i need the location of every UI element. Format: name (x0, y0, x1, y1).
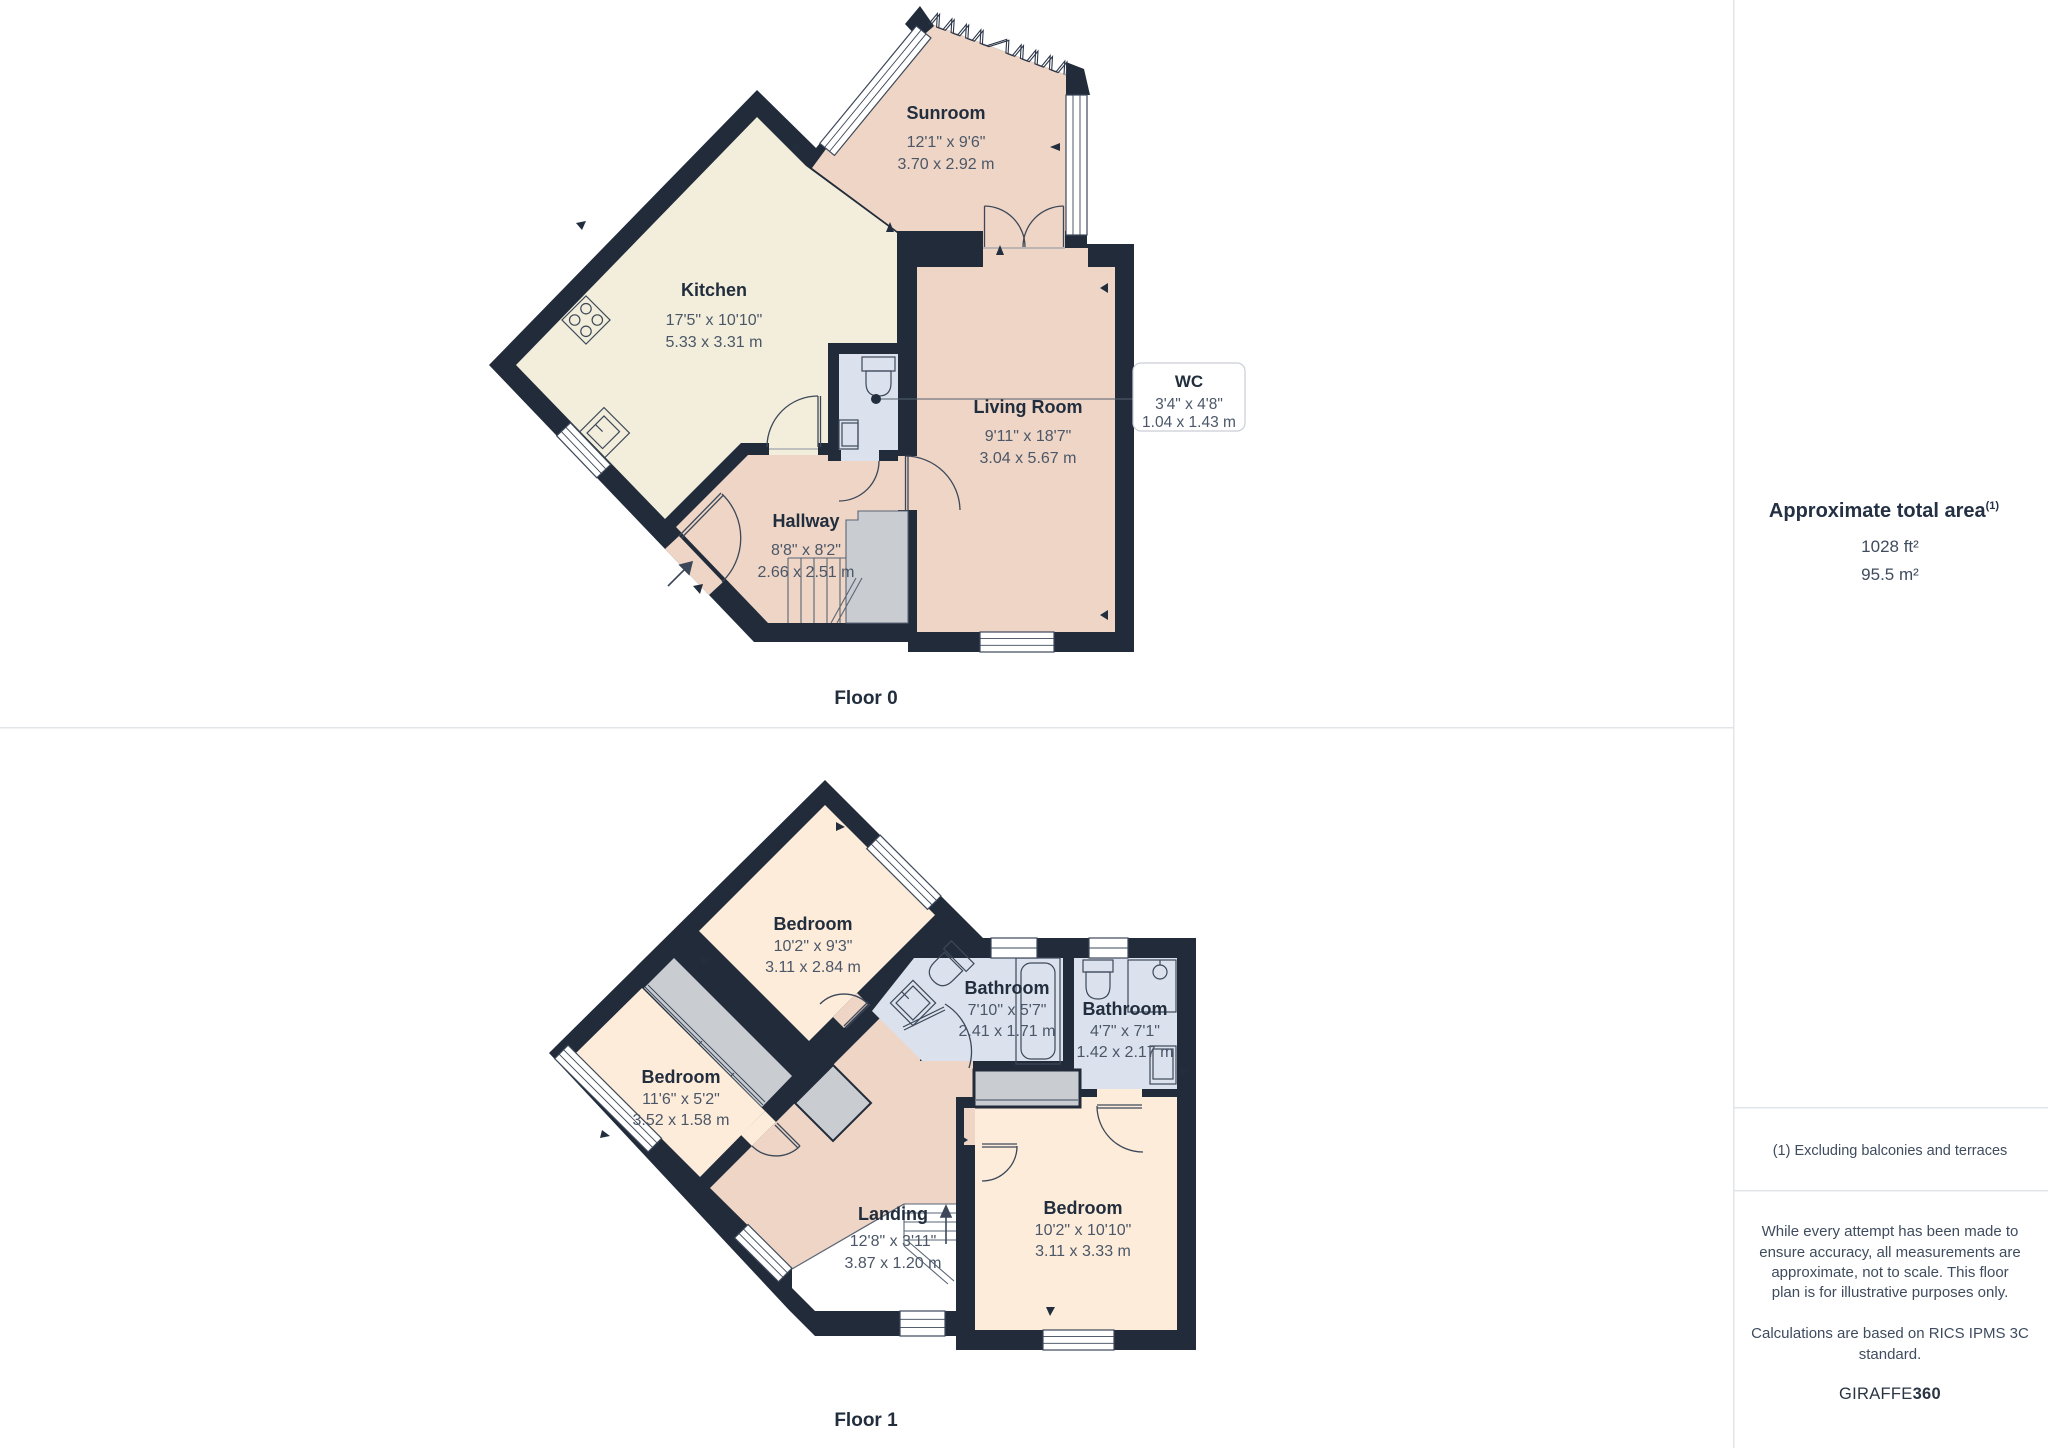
svg-text:9'11" x 18'7": 9'11" x 18'7" (985, 428, 1072, 445)
svg-text:3.11 x 2.84 m: 3.11 x 2.84 m (765, 959, 861, 976)
svg-text:17'5" x 10'10": 17'5" x 10'10" (666, 312, 763, 329)
svg-text:95.5 m²: 95.5 m² (1861, 565, 1919, 584)
svg-text:Bedroom: Bedroom (1043, 1198, 1122, 1218)
svg-text:Kitchen: Kitchen (681, 280, 747, 300)
svg-text:standard.: standard. (1859, 1346, 1922, 1363)
svg-text:5.33 x 3.31 m: 5.33 x 3.31 m (666, 334, 763, 351)
svg-text:WC: WC (1175, 372, 1203, 391)
svg-text:Living Room: Living Room (974, 397, 1083, 417)
svg-text:Bathroom: Bathroom (965, 978, 1050, 998)
svg-text:ensure accuracy, all measureme: ensure accuracy, all measurements are (1759, 1244, 2021, 1261)
svg-text:Calculations are based on RICS: Calculations are based on RICS IPMS 3C (1751, 1325, 2029, 1342)
svg-text:3.11 x 3.33 m: 3.11 x 3.33 m (1035, 1243, 1131, 1260)
svg-text:10'2" x 10'10": 10'2" x 10'10" (1035, 1222, 1132, 1239)
svg-text:plan is for illustrative purpo: plan is for illustrative purposes only. (1772, 1284, 2009, 1301)
svg-text:Bedroom: Bedroom (641, 1067, 720, 1087)
svg-text:7'10" x 5'7": 7'10" x 5'7" (968, 1002, 1047, 1019)
svg-text:Floor 1: Floor 1 (834, 1410, 898, 1431)
svg-text:8'8" x 8'2": 8'8" x 8'2" (771, 542, 841, 559)
svg-text:1.04 x 1.43 m: 1.04 x 1.43 m (1142, 414, 1236, 431)
svg-text:(1) Excluding balconies and te: (1) Excluding balconies and terraces (1773, 1143, 2008, 1159)
svg-text:12'8" x 3'11": 12'8" x 3'11" (850, 1233, 937, 1250)
svg-text:10'2" x 9'3": 10'2" x 9'3" (774, 938, 853, 955)
svg-text:1028 ft²: 1028 ft² (1861, 537, 1919, 556)
svg-text:Hallway: Hallway (772, 511, 839, 531)
svg-text:Approximate total area(1): Approximate total area(1) (1769, 500, 2000, 522)
svg-text:4'7" x 7'1": 4'7" x 7'1" (1090, 1023, 1160, 1040)
svg-text:1.42 x 2.17 m: 1.42 x 2.17 m (1077, 1044, 1174, 1061)
svg-text:Floor 0: Floor 0 (834, 688, 897, 709)
svg-text:2.41 x 1.71 m: 2.41 x 1.71 m (959, 1023, 1056, 1040)
svg-text:3.52 x 1.58 m: 3.52 x 1.58 m (633, 1112, 730, 1129)
svg-text:While every attempt has been m: While every attempt has been made to (1762, 1223, 2019, 1240)
svg-text:Bathroom: Bathroom (1083, 999, 1168, 1019)
svg-text:3.87 x 1.20 m: 3.87 x 1.20 m (845, 1255, 942, 1272)
svg-text:Sunroom: Sunroom (907, 103, 986, 123)
svg-text:approximate, not to scale. Thi: approximate, not to scale. This floor (1771, 1264, 2008, 1281)
svg-text:3'4" x 4'8": 3'4" x 4'8" (1155, 396, 1223, 413)
svg-text:3.70 x 2.92 m: 3.70 x 2.92 m (898, 156, 995, 173)
svg-text:11'6" x 5'2": 11'6" x 5'2" (642, 1091, 720, 1108)
svg-text:GIRAFFE360: GIRAFFE360 (1839, 1385, 1941, 1403)
svg-text:2.66 x 2.51 m: 2.66 x 2.51 m (758, 564, 855, 581)
svg-text:12'1" x 9'6": 12'1" x 9'6" (907, 134, 986, 151)
svg-text:3.04 x 5.67 m: 3.04 x 5.67 m (980, 450, 1077, 467)
svg-text:Bedroom: Bedroom (773, 914, 852, 934)
svg-text:Landing: Landing (858, 1204, 928, 1224)
